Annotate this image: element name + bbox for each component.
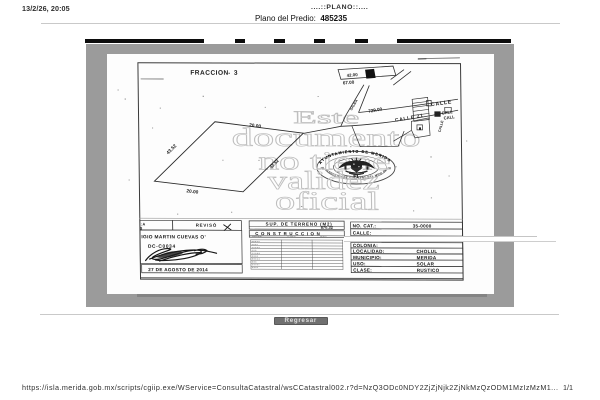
svg-text:NO. CAT.:: NO. CAT.: [352, 223, 376, 228]
svg-text:43.52: 43.52 [165, 143, 178, 156]
svg-text:CALLE:: CALLE: [352, 231, 371, 236]
svg-text:PISOS: PISOS [320, 236, 327, 238]
svg-text:FRACCION: FRACCION [190, 70, 228, 77]
svg-text:27 DE AGOSTO DE 2014: 27 DE AGOSTO DE 2014 [148, 267, 208, 272]
svg-text:42.00: 42.00 [346, 72, 358, 78]
svg-text:CALL: CALL [443, 114, 455, 121]
svg-text:MATERIAL: MATERIAL [252, 235, 263, 238]
svg-text:oficial: oficial [274, 186, 378, 215]
svg-text:CLASE:: CLASE: [353, 268, 372, 273]
svg-text:USO:: USO: [353, 261, 366, 266]
svg-text:CHOLUL: CHOLUL [416, 249, 437, 254]
svg-text:3: 3 [233, 70, 237, 77]
svg-text:CALLE: CALLE [430, 99, 452, 108]
svg-text:TECHOS: TECHOS [287, 236, 296, 238]
svg-text:MERIDA: MERIDA [416, 255, 436, 260]
svg-text:RUSTICO: RUSTICO [416, 268, 439, 273]
svg-text:IGIO MARTIN CUEVAS O’: IGIO MARTIN CUEVAS O’ [141, 234, 206, 240]
svg-text:LOCALIDAD:: LOCALIDAD: [352, 249, 384, 254]
svg-text:COLONIA:: COLONIA: [352, 243, 377, 248]
svg-text:67.00: 67.00 [342, 80, 354, 86]
svg-text:MUNICIPIO:: MUNICIPIO: [353, 255, 382, 260]
svg-text:35-0000: 35-0000 [412, 224, 431, 229]
svg-text:CALLE: CALLE [437, 119, 444, 132]
svg-text:870.32: 870.32 [320, 225, 333, 230]
svg-text:SOLAR: SOLAR [416, 261, 434, 266]
svg-text:F1: F1 [353, 174, 359, 179]
svg-text:20.00: 20.00 [186, 188, 199, 195]
svg-text:REVISÓ: REVISÓ [195, 223, 216, 228]
svg-text:729.00: 729.00 [367, 106, 382, 113]
